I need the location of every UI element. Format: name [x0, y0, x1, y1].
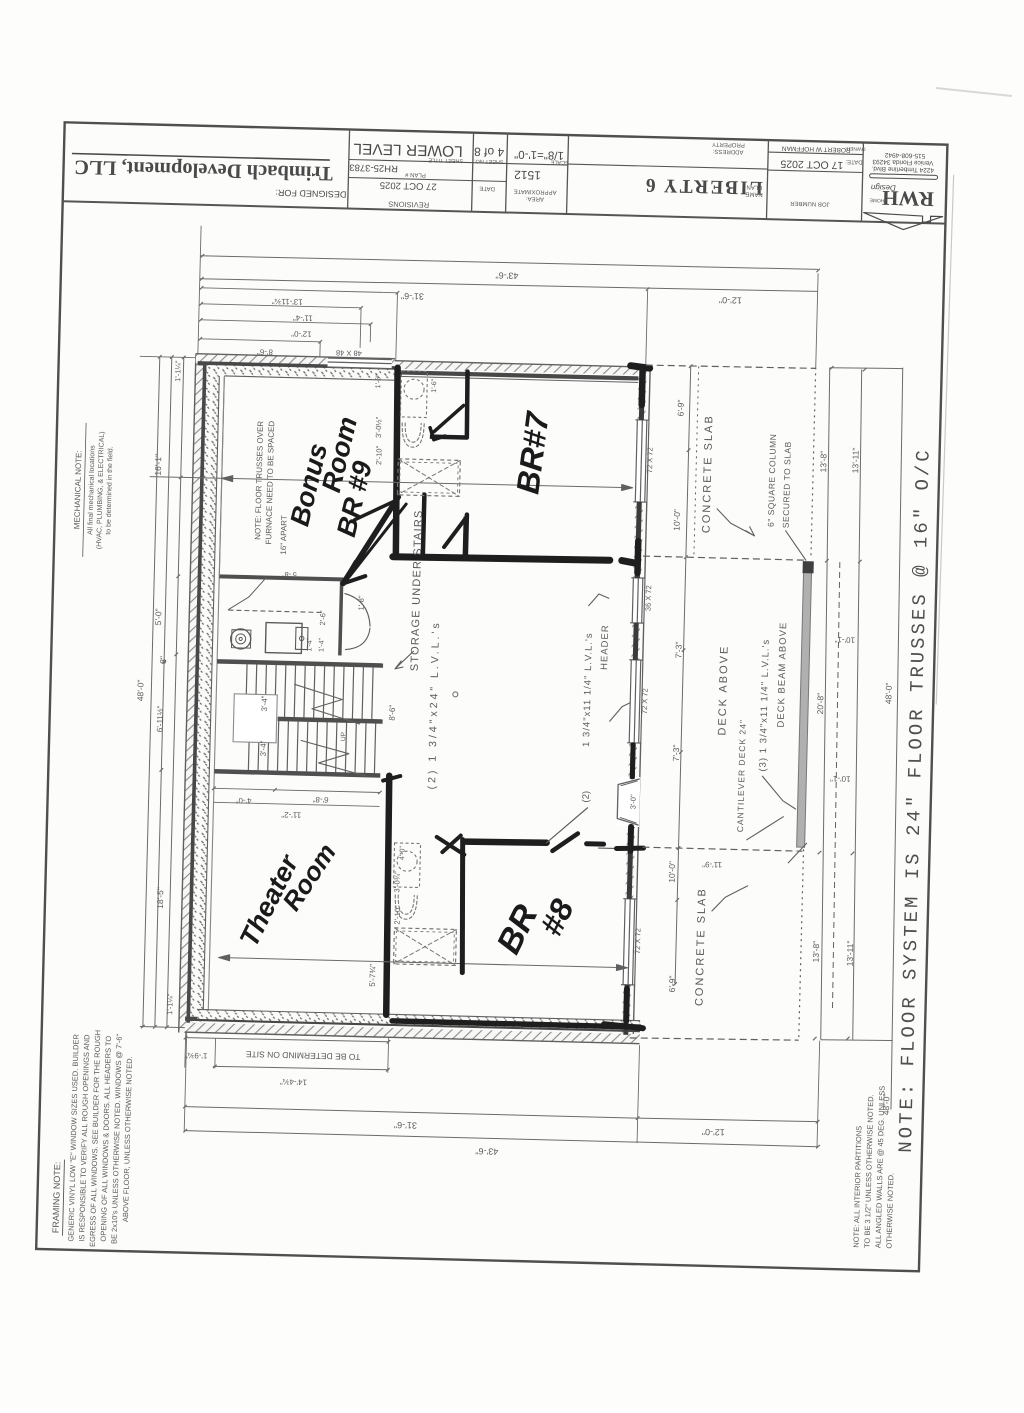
- svg-text:515-608-4942: 515-608-4942: [884, 151, 925, 159]
- svg-text:8'-6": 8'-6": [388, 705, 397, 721]
- svg-text:2'-6": 2'-6": [318, 610, 327, 625]
- svg-text:3'-4": 3'-4": [259, 740, 268, 756]
- svg-text:7'-3": 7'-3": [671, 744, 681, 761]
- svg-text:4'-0": 4'-0": [399, 846, 406, 861]
- svg-text:13'-11¾": 13'-11¾": [272, 297, 303, 307]
- svg-text:31'-6": 31'-6": [394, 1120, 417, 1131]
- svg-text:4 of 8: 4 of 8: [474, 145, 505, 160]
- svg-text:17 OCT 2025: 17 OCT 2025: [780, 157, 843, 171]
- svg-text:1512: 1512: [514, 168, 541, 183]
- svg-text:11'-4": 11'-4": [293, 313, 313, 323]
- svg-text:27 OCT 2025: 27 OCT 2025: [380, 179, 437, 191]
- svg-text:SHEET TITLE: SHEET TITLE: [428, 157, 463, 164]
- svg-text:1'-4": 1'-4": [306, 637, 313, 652]
- svg-text:1'-6": 1'-6": [431, 378, 438, 393]
- svg-text:16'-1": 16'-1": [153, 454, 164, 476]
- svg-text:5'-8": 5'-8": [281, 570, 296, 579]
- svg-text:10'-1": 10'-1": [830, 774, 851, 784]
- svg-text:5'-7¾": 5'-7¾": [368, 964, 378, 987]
- svg-text:13'-11": 13'-11": [845, 940, 856, 966]
- svg-text:13'-8": 13'-8": [811, 941, 822, 963]
- svg-text:48'-0": 48'-0": [135, 679, 146, 701]
- svg-text:72 X 72: 72 X 72: [640, 688, 650, 714]
- svg-text:10'-1": 10'-1": [834, 635, 855, 645]
- svg-text:DECK ABOVE: DECK ABOVE: [716, 645, 730, 736]
- svg-text:12'-0": 12'-0": [702, 1127, 725, 1138]
- svg-text:PLAN: PLAN: [746, 184, 762, 190]
- svg-text:1'-6": 1'-6": [375, 374, 382, 389]
- svg-text:3'-4": 3'-4": [260, 695, 269, 711]
- svg-text:7'-3": 7'-3": [673, 641, 683, 658]
- svg-text:3'-0": 3'-0": [628, 794, 637, 809]
- svg-text:ADDRESS:: ADDRESS:: [712, 148, 743, 155]
- svg-text:SHEET NO.: SHEET NO.: [474, 158, 504, 165]
- svg-text:JOB NUMBER: JOB NUMBER: [789, 200, 829, 207]
- svg-text:13'-11": 13'-11": [850, 447, 861, 473]
- svg-text:RH25-3783: RH25-3783: [349, 162, 398, 174]
- svg-text:1'-1¼": 1'-1¼": [173, 360, 183, 382]
- svg-text:18'-5": 18'-5": [155, 887, 166, 909]
- svg-text:10'-0": 10'-0": [672, 509, 683, 531]
- svg-text:3'-0½": 3'-0½": [374, 416, 384, 438]
- svg-text:DATE:: DATE:: [845, 158, 863, 164]
- svg-text:2'-10": 2'-10": [374, 445, 383, 465]
- svg-text:NAME: NAME: [745, 191, 762, 197]
- svg-text:48 X 48: 48 X 48: [336, 348, 362, 358]
- svg-text:36 X 72: 36 X 72: [644, 585, 654, 611]
- svg-text:APPROXIMATE: APPROXIMATE: [514, 188, 557, 195]
- svg-text:1'-9¾": 1'-9¾": [185, 1051, 208, 1061]
- svg-text:10'-0": 10'-0": [667, 861, 678, 883]
- svg-text:SCALE: SCALE: [550, 159, 569, 165]
- svg-text:72 X 72: 72 X 72: [633, 928, 643, 954]
- svg-text:72 X 72: 72 X 72: [645, 447, 655, 473]
- svg-text:DESIGNED FOR:: DESIGNED FOR:: [275, 188, 346, 200]
- svg-text:12'-0": 12'-0": [719, 295, 742, 306]
- svg-text:43'-6": 43'-6": [475, 1146, 498, 1157]
- svg-text:1'-4": 1'-4": [318, 637, 325, 652]
- svg-text:LIBERTY 6: LIBERTY 6: [644, 174, 763, 198]
- svg-text:UP: UP: [340, 732, 347, 741]
- svg-text:1'-1¼": 1'-1¼": [165, 993, 175, 1015]
- svg-text:AREA:: AREA:: [526, 195, 544, 201]
- svg-text:11'-9": 11'-9": [702, 860, 722, 870]
- svg-text:20'-8": 20'-8": [815, 693, 826, 715]
- svg-text:PROPERTY: PROPERTY: [712, 141, 745, 148]
- svg-text:31'-6": 31'-6": [401, 291, 424, 302]
- svg-text:8": 8": [158, 656, 168, 664]
- svg-text:43'-6": 43'-6": [495, 270, 518, 281]
- svg-text:48'-0": 48'-0": [883, 682, 894, 704]
- svg-text:(2): (2): [581, 791, 592, 803]
- svg-text:14'-4¾": 14'-4¾": [280, 1077, 307, 1087]
- svg-text:FRAMING NOTE:: FRAMING NOTE:: [51, 1162, 63, 1234]
- svg-text:5'-0": 5'-0": [153, 608, 163, 625]
- svg-text:REVISIONS: REVISIONS: [388, 200, 429, 210]
- svg-text:LOWER LEVEL: LOWER LEVEL: [353, 140, 463, 160]
- svg-text:6'-9": 6'-9": [667, 975, 677, 992]
- svg-text:4'-0": 4'-0": [235, 796, 251, 805]
- svg-text:OTHERWISE NOTED.: OTHERWISE NOTED.: [884, 1173, 895, 1249]
- svg-text:2'-10": 2'-10": [393, 905, 402, 925]
- svg-text:Design: Design: [870, 183, 896, 193]
- svg-text:HEADER: HEADER: [599, 624, 611, 670]
- svg-text:6'-8": 6'-8": [312, 795, 328, 804]
- svg-text:PLAN #: PLAN #: [404, 171, 425, 178]
- svg-text:DATE: DATE: [479, 185, 495, 191]
- svg-text:6'-11½": 6'-11½": [155, 705, 165, 732]
- svg-text:6'-9": 6'-9": [675, 399, 685, 416]
- svg-text:HOME: HOME: [869, 197, 885, 203]
- svg-text:12'-0": 12'-0": [291, 329, 312, 339]
- svg-text:13'-8": 13'-8": [818, 451, 829, 473]
- svg-text:11'-2": 11'-2": [281, 810, 301, 820]
